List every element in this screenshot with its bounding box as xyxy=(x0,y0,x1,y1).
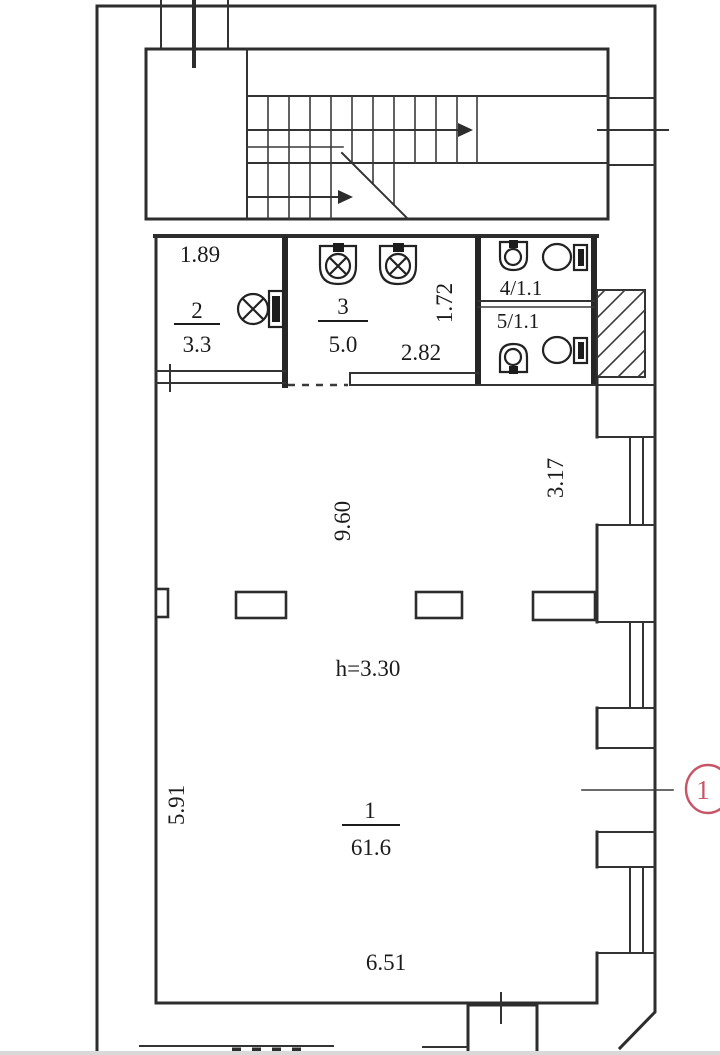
stairwell xyxy=(146,49,668,219)
stair-treads xyxy=(268,96,477,219)
sink-icon xyxy=(380,243,416,284)
toilet-icon xyxy=(238,291,283,327)
entrance-marker: 1 xyxy=(686,765,720,813)
floor-plan-page: 1.89 2 3.3 3 5.0 2.82 1.72 4/1.1 5/1.1 9… xyxy=(0,0,720,1055)
room4-label: 4/1.1 xyxy=(500,276,543,300)
room3-number-label: 3 xyxy=(337,294,349,319)
dim-label-172: 1.72 xyxy=(432,283,457,323)
room1-number-label: 1 xyxy=(364,798,376,823)
toilet-icon xyxy=(543,337,587,363)
adjacent-structure xyxy=(140,1046,468,1050)
sink-icon xyxy=(500,344,527,374)
columns xyxy=(156,589,595,620)
sink-icon xyxy=(320,243,356,284)
main-hall xyxy=(156,377,673,1003)
floor-plan-svg: 1.89 2 3.3 3 5.0 2.82 1.72 4/1.1 5/1.1 9… xyxy=(0,0,720,1055)
room2-area-label: 3.3 xyxy=(183,332,212,357)
hatch-shaft xyxy=(518,290,720,377)
toilet-icon xyxy=(543,244,587,270)
dim-label-282: 2.82 xyxy=(401,340,441,365)
dim-label-317: 3.17 xyxy=(543,458,568,498)
dim-label-960: 9.60 xyxy=(330,501,355,541)
sink-icon xyxy=(500,240,527,270)
dim-label-591: 5.91 xyxy=(164,785,189,825)
dim-label-189: 1.89 xyxy=(180,242,220,267)
room3-area-label: 5.0 xyxy=(329,332,358,357)
room2-number-label: 2 xyxy=(191,298,203,323)
image-edge-strip xyxy=(0,1051,720,1055)
room5-label: 5/1.1 xyxy=(497,309,540,333)
room1-area-label: 61.6 xyxy=(351,835,391,860)
dim-label-651: 6.51 xyxy=(366,950,406,975)
entrance-marker-label: 1 xyxy=(696,775,710,805)
chimney xyxy=(161,0,228,66)
window-bays xyxy=(630,437,643,953)
ceiling-height-label: h=3.30 xyxy=(336,656,401,681)
